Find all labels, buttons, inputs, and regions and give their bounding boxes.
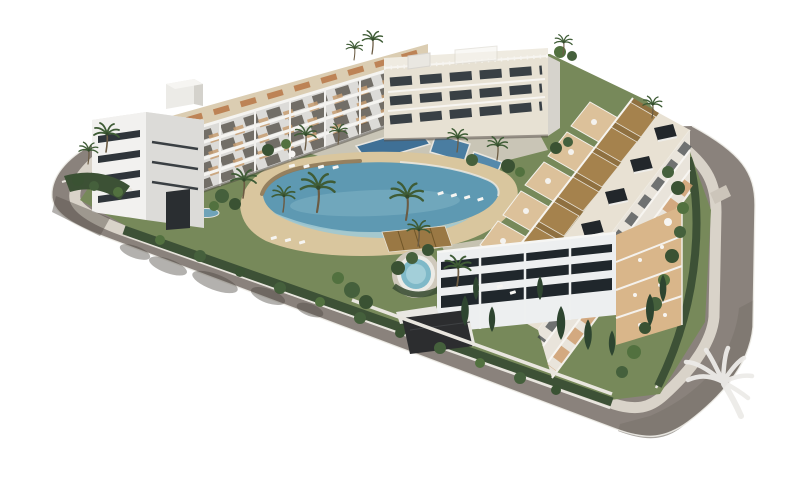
building-center: [384, 46, 560, 140]
roof-elevator-tower: [166, 79, 203, 109]
jacuzzi-water-highlight: [406, 264, 426, 284]
roof-stair-box: [408, 53, 430, 69]
beach-parasol: [289, 151, 296, 158]
entrance: [166, 189, 190, 230]
architectural-render-canvas: [0, 0, 788, 477]
side-face: [548, 56, 560, 136]
render-image: [0, 0, 788, 477]
